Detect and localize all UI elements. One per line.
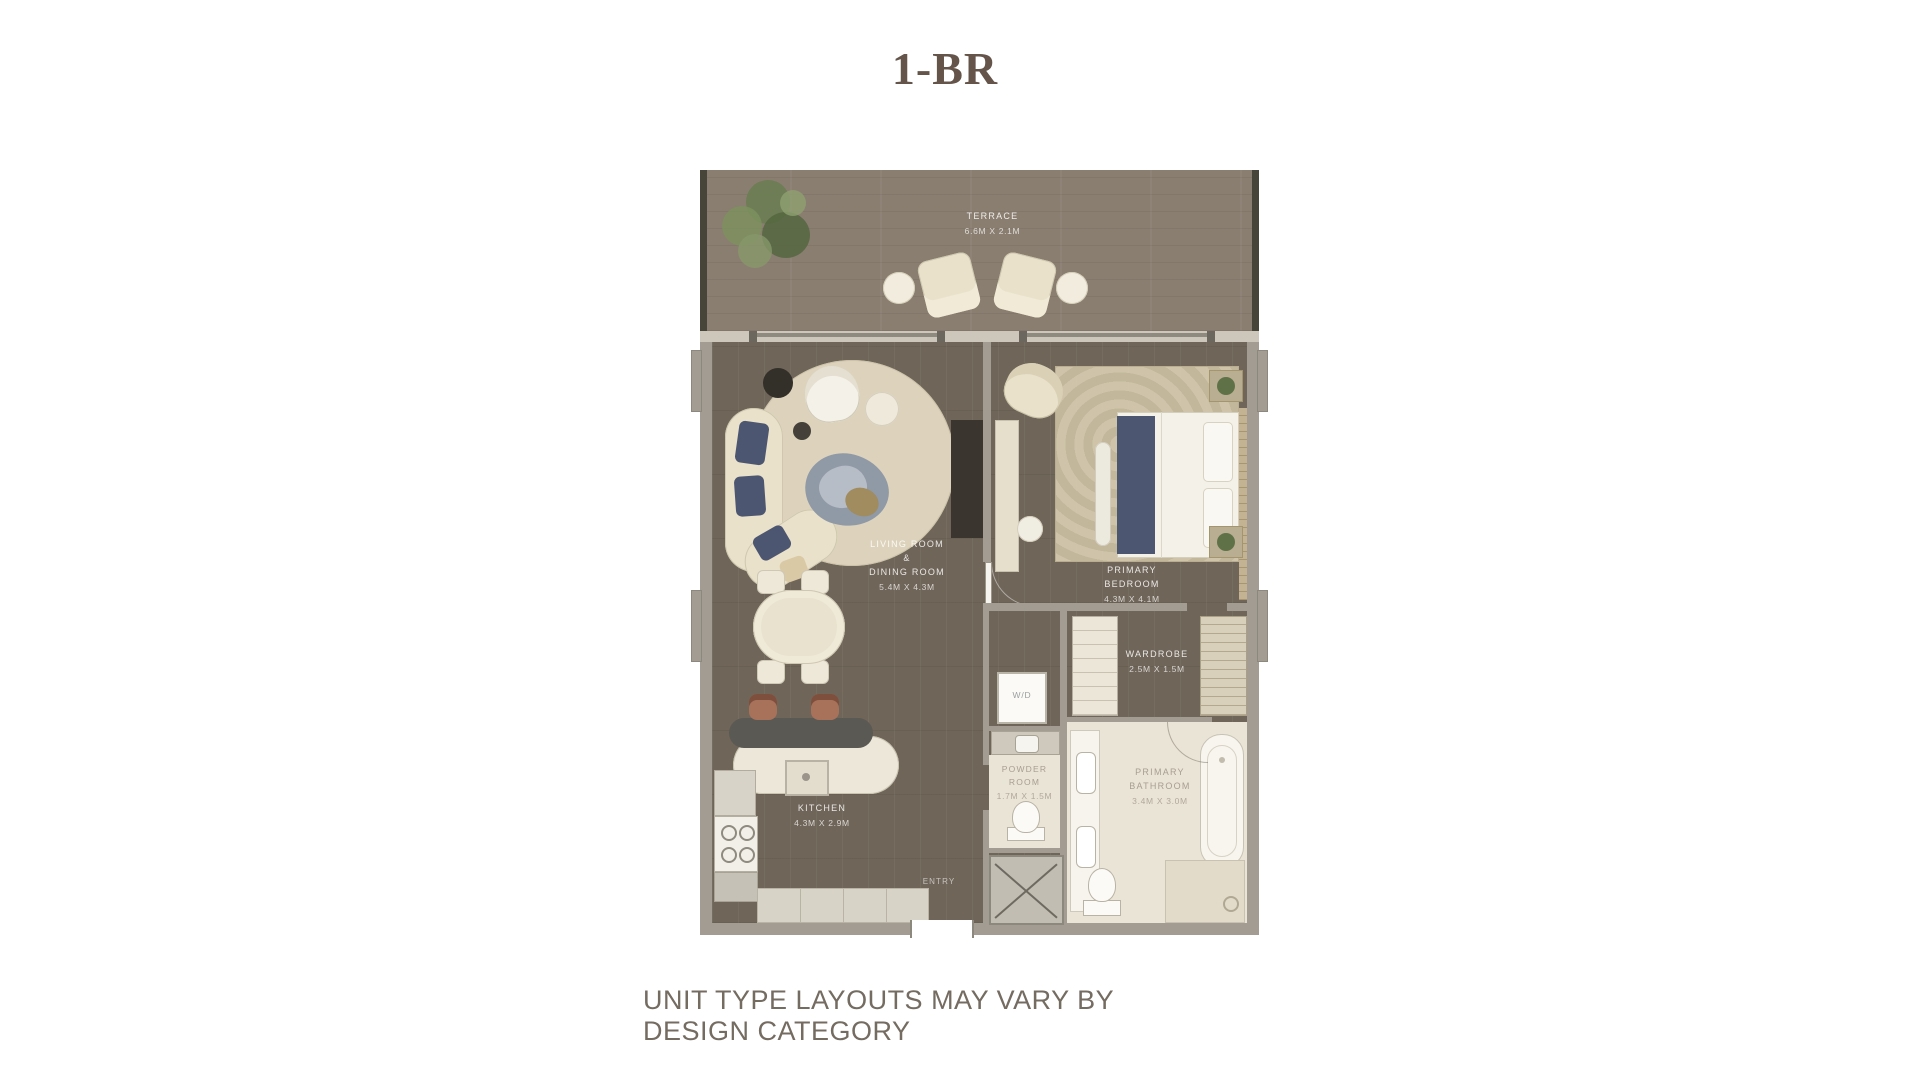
shower-area bbox=[1165, 860, 1245, 923]
bathroom-sink bbox=[1076, 826, 1096, 868]
tv-console bbox=[951, 420, 983, 538]
wardrobe-name: WARDROBE bbox=[1087, 648, 1227, 662]
sliding-door bbox=[1027, 333, 1207, 337]
wall-bedroom-bottom-left bbox=[983, 603, 1187, 611]
powder-name: POWDER ROOM bbox=[989, 763, 1060, 789]
terrace-label: TERRACE 6.6M X 2.1M bbox=[880, 210, 1105, 236]
terrace-plant-icon bbox=[718, 176, 822, 276]
plant-icon bbox=[1217, 533, 1235, 551]
pouf bbox=[865, 392, 899, 426]
bedroom-name: PRIMARY BEDROOM bbox=[1062, 564, 1202, 592]
bedroom-label: PRIMARY BEDROOM 4.3M X 4.1M bbox=[1062, 564, 1202, 604]
wall-living-bedroom bbox=[983, 342, 991, 562]
bathroom-label: PRIMARY BATHROOM 3.4M X 3.0M bbox=[1105, 766, 1215, 806]
floor-plan: TERRACE 6.6M X 2.1M bbox=[697, 170, 1262, 940]
outer-wall-bottom bbox=[700, 923, 1259, 935]
kitchen-label: KITCHEN 4.3M X 2.9M bbox=[752, 802, 892, 828]
terrace-wall-right bbox=[1252, 170, 1259, 331]
bathroom-floor: PRIMARY BATHROOM 3.4M X 3.0M bbox=[1067, 722, 1247, 923]
entry-label: ENTRY bbox=[902, 876, 976, 888]
entry-door-opening bbox=[910, 920, 974, 938]
lounge-chair bbox=[916, 250, 982, 319]
washer-dryer-box: W/D bbox=[997, 672, 1047, 724]
powder-dims: 1.7M X 1.5M bbox=[989, 791, 1060, 801]
bar-stool bbox=[811, 694, 839, 720]
terrace-dims: 6.6M X 2.1M bbox=[880, 226, 1105, 236]
wall-powder-bottom bbox=[989, 848, 1060, 853]
kitchen-dims: 4.3M X 2.9M bbox=[752, 818, 892, 828]
oven bbox=[714, 872, 758, 902]
kitchen-cabinets bbox=[757, 888, 929, 923]
side-table bbox=[883, 272, 915, 304]
bedroom-dims: 4.3M X 4.1M bbox=[1062, 594, 1202, 604]
page-title: 1-BR bbox=[820, 42, 1070, 95]
terrace-area: TERRACE 6.6M X 2.1M bbox=[700, 170, 1259, 331]
bed-bench bbox=[1095, 442, 1111, 546]
wardrobe-label: WARDROBE 2.5M X 1.5M bbox=[1087, 648, 1227, 674]
bathroom-sink bbox=[1076, 752, 1096, 794]
living-room-label: LIVING ROOM & DINING ROOM 5.4M X 4.3M bbox=[837, 538, 977, 592]
living-room-dims: 5.4M X 4.3M bbox=[837, 582, 977, 592]
terrace-name: TERRACE bbox=[880, 210, 1105, 224]
kitchen-name: KITCHEN bbox=[752, 802, 892, 816]
powder-toilet bbox=[1012, 801, 1040, 833]
dining-table bbox=[753, 590, 845, 664]
fridge bbox=[714, 770, 756, 816]
wall-pilaster bbox=[691, 590, 702, 662]
sofa-cushion bbox=[734, 475, 767, 517]
powder-room-floor: POWDER ROOM 1.7M X 1.5M bbox=[989, 755, 1060, 848]
nightstand bbox=[1209, 526, 1243, 558]
dining-chair bbox=[757, 660, 785, 684]
plant-icon bbox=[1217, 377, 1235, 395]
side-table bbox=[763, 368, 793, 398]
bathroom-dims: 3.4M X 3.0M bbox=[1105, 796, 1215, 806]
washer-dryer-label: W/D bbox=[999, 690, 1045, 700]
nightstand bbox=[1209, 370, 1243, 402]
terrace-wall-left bbox=[700, 170, 707, 331]
bar-stool bbox=[749, 694, 777, 720]
wall-pilaster bbox=[1257, 590, 1268, 662]
disclaimer-text: UNIT TYPE LAYOUTS MAY VARY BY DESIGN CAT… bbox=[643, 985, 1203, 1047]
wall-pilaster bbox=[1257, 350, 1268, 412]
bedroom-dresser bbox=[995, 420, 1019, 572]
bed-throw bbox=[1117, 416, 1155, 554]
wall-pilaster bbox=[691, 350, 702, 412]
lounge-chair bbox=[992, 250, 1058, 319]
wardrobe-dims: 2.5M X 1.5M bbox=[1087, 664, 1227, 674]
bathroom-name: PRIMARY BATHROOM bbox=[1105, 766, 1215, 794]
powder-label: POWDER ROOM 1.7M X 1.5M bbox=[989, 763, 1060, 801]
bathroom-toilet-tank bbox=[1083, 900, 1121, 916]
powder-sink bbox=[1015, 735, 1039, 753]
living-room-name: LIVING ROOM & DINING ROOM bbox=[837, 538, 977, 580]
balcony-wall bbox=[700, 331, 1259, 342]
kitchen-island bbox=[729, 718, 873, 748]
bed-headboard bbox=[1239, 408, 1247, 600]
side-table bbox=[1056, 272, 1088, 304]
wall-column-left-upper bbox=[983, 611, 989, 765]
bed-pillow bbox=[1203, 422, 1233, 482]
powder-vanity bbox=[991, 731, 1060, 755]
kitchen-sink bbox=[785, 760, 829, 796]
sofa-cushion bbox=[734, 420, 770, 466]
entry-name: ENTRY bbox=[902, 876, 976, 888]
shower-drain bbox=[1223, 896, 1239, 912]
bathroom-door-arc bbox=[1167, 722, 1208, 763]
side-table bbox=[793, 422, 811, 440]
sliding-door bbox=[757, 333, 937, 337]
shaft-box bbox=[989, 855, 1064, 925]
vanity-stool bbox=[1017, 516, 1043, 542]
wall-bedroom-bottom-right bbox=[1227, 603, 1247, 611]
floor-plan-page: { "title": "1-BR", "disclaimer": "UNIT T… bbox=[0, 0, 1920, 1080]
bathroom-toilet bbox=[1088, 868, 1116, 902]
